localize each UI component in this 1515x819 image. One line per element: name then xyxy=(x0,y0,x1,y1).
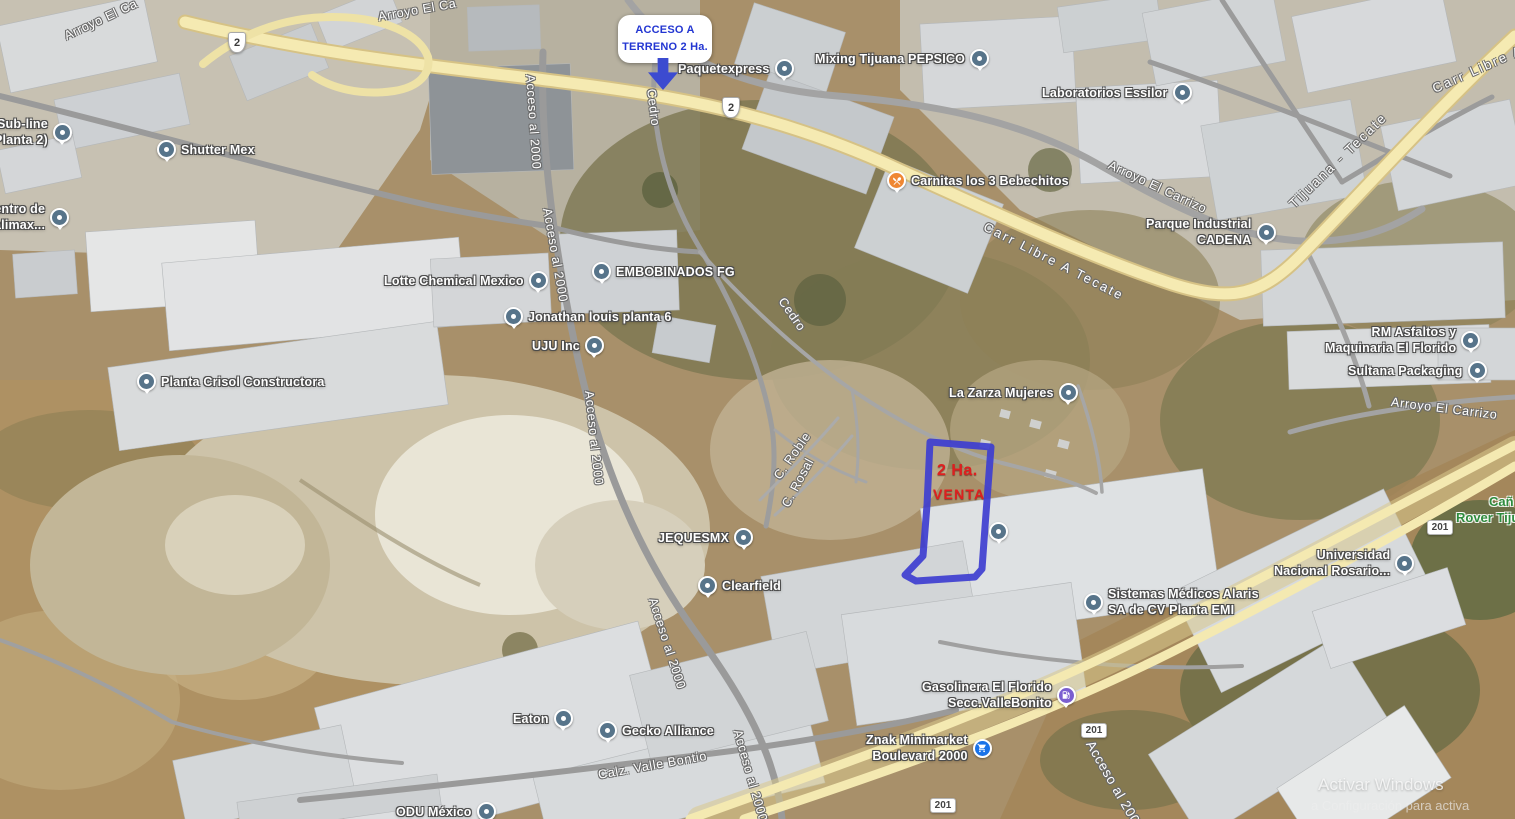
place-label: UJU Inc xyxy=(532,338,580,354)
place-uju-inc[interactable]: UJU Inc xyxy=(532,336,604,355)
place-label: Universidad Nacional Rosario... xyxy=(1274,547,1390,579)
place-jequesmx[interactable]: JEQUESMX xyxy=(658,528,753,547)
place-pin-icon xyxy=(1461,331,1480,350)
place-label: Shutter Mex xyxy=(181,142,255,158)
place-lotte-chemical-mexico[interactable]: Lotte Chemical Mexico xyxy=(384,271,548,290)
gas-station-pin-icon xyxy=(1057,686,1076,705)
place-pin-icon xyxy=(585,336,604,355)
route-2-shield: 2 xyxy=(722,97,740,118)
place-pin-icon xyxy=(1468,361,1487,380)
place-pin-icon xyxy=(592,262,611,281)
place-odu-mexico[interactable]: ODU México xyxy=(396,802,496,819)
place-universidad-nacional[interactable]: Universidad Nacional Rosario... xyxy=(1274,547,1414,579)
place-label: Planta Crisol Constructora xyxy=(161,374,325,390)
place-subline-planta[interactable]: Sub-line Planta 2) xyxy=(0,116,72,148)
nature-label: Rover Tiju xyxy=(1456,510,1515,525)
place-label: Parque Industrial CADENA xyxy=(1146,216,1252,248)
satellite-imagery xyxy=(0,0,1515,819)
parcel-area-label: 2 Ha. xyxy=(937,462,978,480)
place-parque-industrial-cadena[interactable]: Parque Industrial CADENA xyxy=(1146,216,1276,248)
place-mixing-tijuana-pepsico[interactable]: Mixing Tijuana PEPSICO xyxy=(815,49,989,68)
satellite-map[interactable]: Arroyo El Ca Arroyo El Ca Cedro Cedro Ac… xyxy=(0,0,1515,819)
windows-watermark-line1: Activar Windows xyxy=(1318,775,1444,795)
place-centro-alimax[interactable]: entro de alimax... xyxy=(0,201,69,233)
place-pin-icon xyxy=(698,576,717,595)
place-pin-icon xyxy=(554,709,573,728)
place-label: Sub-line Planta 2) xyxy=(0,116,48,148)
place-rm-asfaltos[interactable]: RM Asfaltos y Maquinaria El Florido xyxy=(1325,324,1480,356)
place-pin-icon xyxy=(970,49,989,68)
place-label: RM Asfaltos y Maquinaria El Florido xyxy=(1325,324,1456,356)
place-sultana-packaging[interactable]: Sultana Packaging xyxy=(1348,361,1487,380)
place-unlabeled-poi[interactable] xyxy=(989,522,1008,541)
place-pin-icon xyxy=(989,522,1008,541)
nature-label: Cañ xyxy=(1489,494,1514,509)
route-201-shield: 201 xyxy=(1427,520,1453,535)
place-label: Gasolinera El Florido Secc.ValleBonito xyxy=(922,679,1052,711)
route-201-shield: 201 xyxy=(930,798,956,813)
place-label: Jonathan louis planta 6 xyxy=(528,309,672,325)
place-eaton[interactable]: Eaton xyxy=(513,709,573,728)
place-pin-icon xyxy=(477,802,496,819)
place-sistemas-medicos-alaris[interactable]: Sistemas Médicos Alaris SA de CV Planta … xyxy=(1084,586,1259,618)
place-planta-crisol-constructora[interactable]: Planta Crisol Constructora xyxy=(137,372,325,391)
place-label: Laboratorios Essilor xyxy=(1042,85,1168,101)
place-gasolinera-el-florido[interactable]: Gasolinera El Florido Secc.ValleBonito xyxy=(922,679,1076,711)
place-pin-icon xyxy=(775,59,794,78)
place-label: Lotte Chemical Mexico xyxy=(384,273,524,289)
place-pin-icon xyxy=(1059,383,1078,402)
place-pin-icon xyxy=(1395,554,1414,573)
place-pin-icon xyxy=(137,372,156,391)
place-pin-icon xyxy=(1173,83,1192,102)
place-label: JEQUESMX xyxy=(658,530,729,546)
place-pin-icon xyxy=(50,208,69,227)
shopping-cart-pin-icon xyxy=(973,739,992,758)
place-znak-minimarket[interactable]: Znak Minimarket Boulevard 2000 xyxy=(866,732,992,764)
place-shutter-mex[interactable]: Shutter Mex xyxy=(157,140,255,159)
place-clearfield[interactable]: Clearfield xyxy=(698,576,781,595)
place-pin-icon xyxy=(598,721,617,740)
place-label: Sultana Packaging xyxy=(1348,363,1463,379)
place-pin-icon xyxy=(1084,593,1103,612)
place-pin-icon xyxy=(157,140,176,159)
route-201-shield: 201 xyxy=(1081,723,1107,738)
place-pin-icon xyxy=(529,271,548,290)
place-label: Gecko Alliance xyxy=(622,723,714,739)
place-pin-icon xyxy=(53,123,72,142)
place-gecko-alliance[interactable]: Gecko Alliance xyxy=(598,721,714,740)
place-label: Carnitas los 3 Bebechitos xyxy=(911,173,1069,189)
place-label: EMBOBINADOS FG xyxy=(616,264,735,280)
restaurant-pin-icon xyxy=(887,171,906,190)
place-label: ODU México xyxy=(396,804,472,819)
access-callout: ACCESO A TERRENO 2 Ha. xyxy=(618,15,712,63)
place-carnitas-los-3-bebechitos[interactable]: Carnitas los 3 Bebechitos xyxy=(887,171,1069,190)
place-label: entro de alimax... xyxy=(0,201,45,233)
place-embobinados-fg[interactable]: EMBOBINADOS FG xyxy=(592,262,735,281)
place-label: Eaton xyxy=(513,711,549,727)
place-pin-icon xyxy=(1257,223,1276,242)
place-pin-icon xyxy=(734,528,753,547)
place-label: Mixing Tijuana PEPSICO xyxy=(815,51,965,67)
place-label: La Zarza Mujeres xyxy=(949,385,1054,401)
place-pin-icon xyxy=(504,307,523,326)
windows-watermark-line2: a Configuración para activa xyxy=(1311,798,1469,813)
place-label: Sistemas Médicos Alaris SA de CV Planta … xyxy=(1108,586,1259,618)
parcel-status-label: VENTA xyxy=(933,486,985,502)
place-la-zarza-mujeres[interactable]: La Zarza Mujeres xyxy=(949,383,1078,402)
route-2-shield: 2 xyxy=(228,32,246,53)
place-label: Znak Minimarket Boulevard 2000 xyxy=(866,732,968,764)
place-jonathan-louis-planta-6[interactable]: Jonathan louis planta 6 xyxy=(504,307,672,326)
place-laboratorios-essilor[interactable]: Laboratorios Essilor xyxy=(1042,83,1192,102)
place-label: Clearfield xyxy=(722,578,781,594)
